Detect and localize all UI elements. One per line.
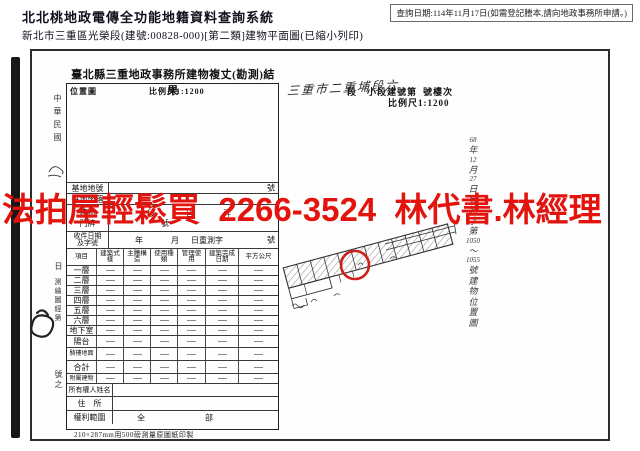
table-row: 一層 [67, 266, 278, 276]
note-char: 年 [468, 145, 477, 156]
table-row: 騎樓地面 [67, 348, 278, 361]
note-char: 物 [468, 286, 477, 297]
owner-name-row: 所有權人姓名 [67, 384, 278, 397]
row-label: 地下室 [67, 326, 97, 335]
rights-label: 權利範圍 [67, 411, 113, 424]
location-map-scale: 比例尺1:1200 [149, 86, 205, 97]
ink-scribble [46, 148, 64, 180]
row-label: 一層 [67, 266, 97, 275]
row-label: 三層 [67, 286, 97, 295]
row-label: 五層 [67, 306, 97, 315]
row-label: 二層 [67, 276, 97, 285]
receipt-label-2: 及字號 [77, 240, 98, 247]
row-label: 騎樓地面 [67, 348, 97, 360]
note-char: 〜 [468, 246, 477, 257]
receipt-row: 收件日期 及字號 年 月 日重測字 號 [67, 232, 278, 249]
rights-value: 全 部 [137, 412, 239, 423]
row-label: 六層 [67, 316, 97, 325]
paper-spec-footnote: 210×287mm用500磅測量原圖紙印製 [74, 430, 194, 440]
note-char: 置 [468, 307, 477, 318]
note-char: 1050 [466, 237, 480, 246]
note-char: 號 [468, 265, 477, 276]
col-completion: 建築完成日期 [206, 249, 239, 265]
ink-stamp-scribble [23, 305, 57, 343]
residence-label: 住 所 [67, 397, 113, 410]
col-management: 管理使用 [178, 249, 206, 265]
note-char: 27 [470, 175, 477, 184]
owner-name-label: 所有權人姓名 [67, 384, 113, 396]
survey-form: 位置圖 比例尺1:1200 基地地號 號 基地坐落 建物門牌 段 巷 弄 號 收… [66, 83, 279, 430]
table-row: 陽台 [67, 336, 278, 348]
table-header-row: 項目 建築式樣 主體構造 使用種類 管理使用 建築完成日期 平方公尺 [67, 249, 278, 266]
table-row: 四層 [67, 296, 278, 306]
col-style: 建築式樣 [97, 249, 124, 265]
table-row: 五層 [67, 306, 278, 316]
residence-row: 住 所 [67, 397, 278, 411]
receipt-year: 年 [135, 235, 143, 246]
row-label: 四層 [67, 296, 97, 305]
receipt-no: 號 [267, 235, 275, 246]
note-char: 月 [468, 165, 477, 176]
receipt-word: 日重測字 [191, 235, 223, 246]
query-date-note: 查詢日期:114年11月17日(如需登記謄本,請向地政事務所申請。) [390, 4, 633, 22]
red-ad-overlay: 法拍屋輕鬆買 2266-3524 林代書.林經理 [2, 191, 602, 228]
table-row: 地下室 [67, 326, 278, 336]
note-char: 12 [470, 156, 477, 165]
row-label: 合計 [67, 361, 97, 373]
rights-row: 權利範圍 全 部 [67, 411, 278, 424]
col-usage: 使用種類 [151, 249, 178, 265]
system-title: 北北桃地政電傳全功能地籍資料查詢系統 [22, 7, 274, 26]
margin-text-day: 日 [53, 262, 64, 270]
note-char: 位 [468, 297, 477, 308]
margin-text-number: 號之 [53, 370, 64, 390]
scan-edge-artifact [11, 57, 20, 438]
handwritten-survey-note: 68 年 12 月 27 日 會 測 字 第 1050 〜 1055 號 建 物… [464, 136, 482, 336]
row-label: 附屬建物 [67, 374, 97, 383]
receipt-month: 月 [171, 235, 179, 246]
table-row: 六層 [67, 316, 278, 326]
row-label: 陽台 [67, 336, 97, 347]
table-row: 合計 [67, 361, 278, 374]
query-result-page: 北北桃地政電傳全功能地籍資料查詢系統 查詢日期:114年11月17日(如需登記謄… [0, 0, 640, 451]
plan-scale-label: 比例尺1:1200 [388, 96, 450, 109]
table-row: 附屬建物 [67, 374, 278, 384]
note-char: 1055 [466, 256, 480, 265]
document-subtitle: 新北市三重區光榮段(建號:00828-000)[第二類]建物平面圖(已縮小列印) [22, 28, 363, 43]
col-item: 項目 [67, 249, 97, 265]
note-char: 68 [470, 136, 477, 145]
location-map-box: 位置圖 比例尺1:1200 [67, 84, 278, 183]
location-map-label: 位置圖 [70, 86, 97, 97]
note-char: 圖 [468, 318, 477, 329]
col-structure: 主體構造 [124, 249, 151, 265]
note-char: 建 [468, 276, 477, 287]
table-row: 三層 [67, 286, 278, 296]
margin-text-minguo: 中華民國 [52, 94, 63, 146]
table-row: 二層 [67, 276, 278, 286]
col-area: 平方公尺 [239, 249, 278, 265]
